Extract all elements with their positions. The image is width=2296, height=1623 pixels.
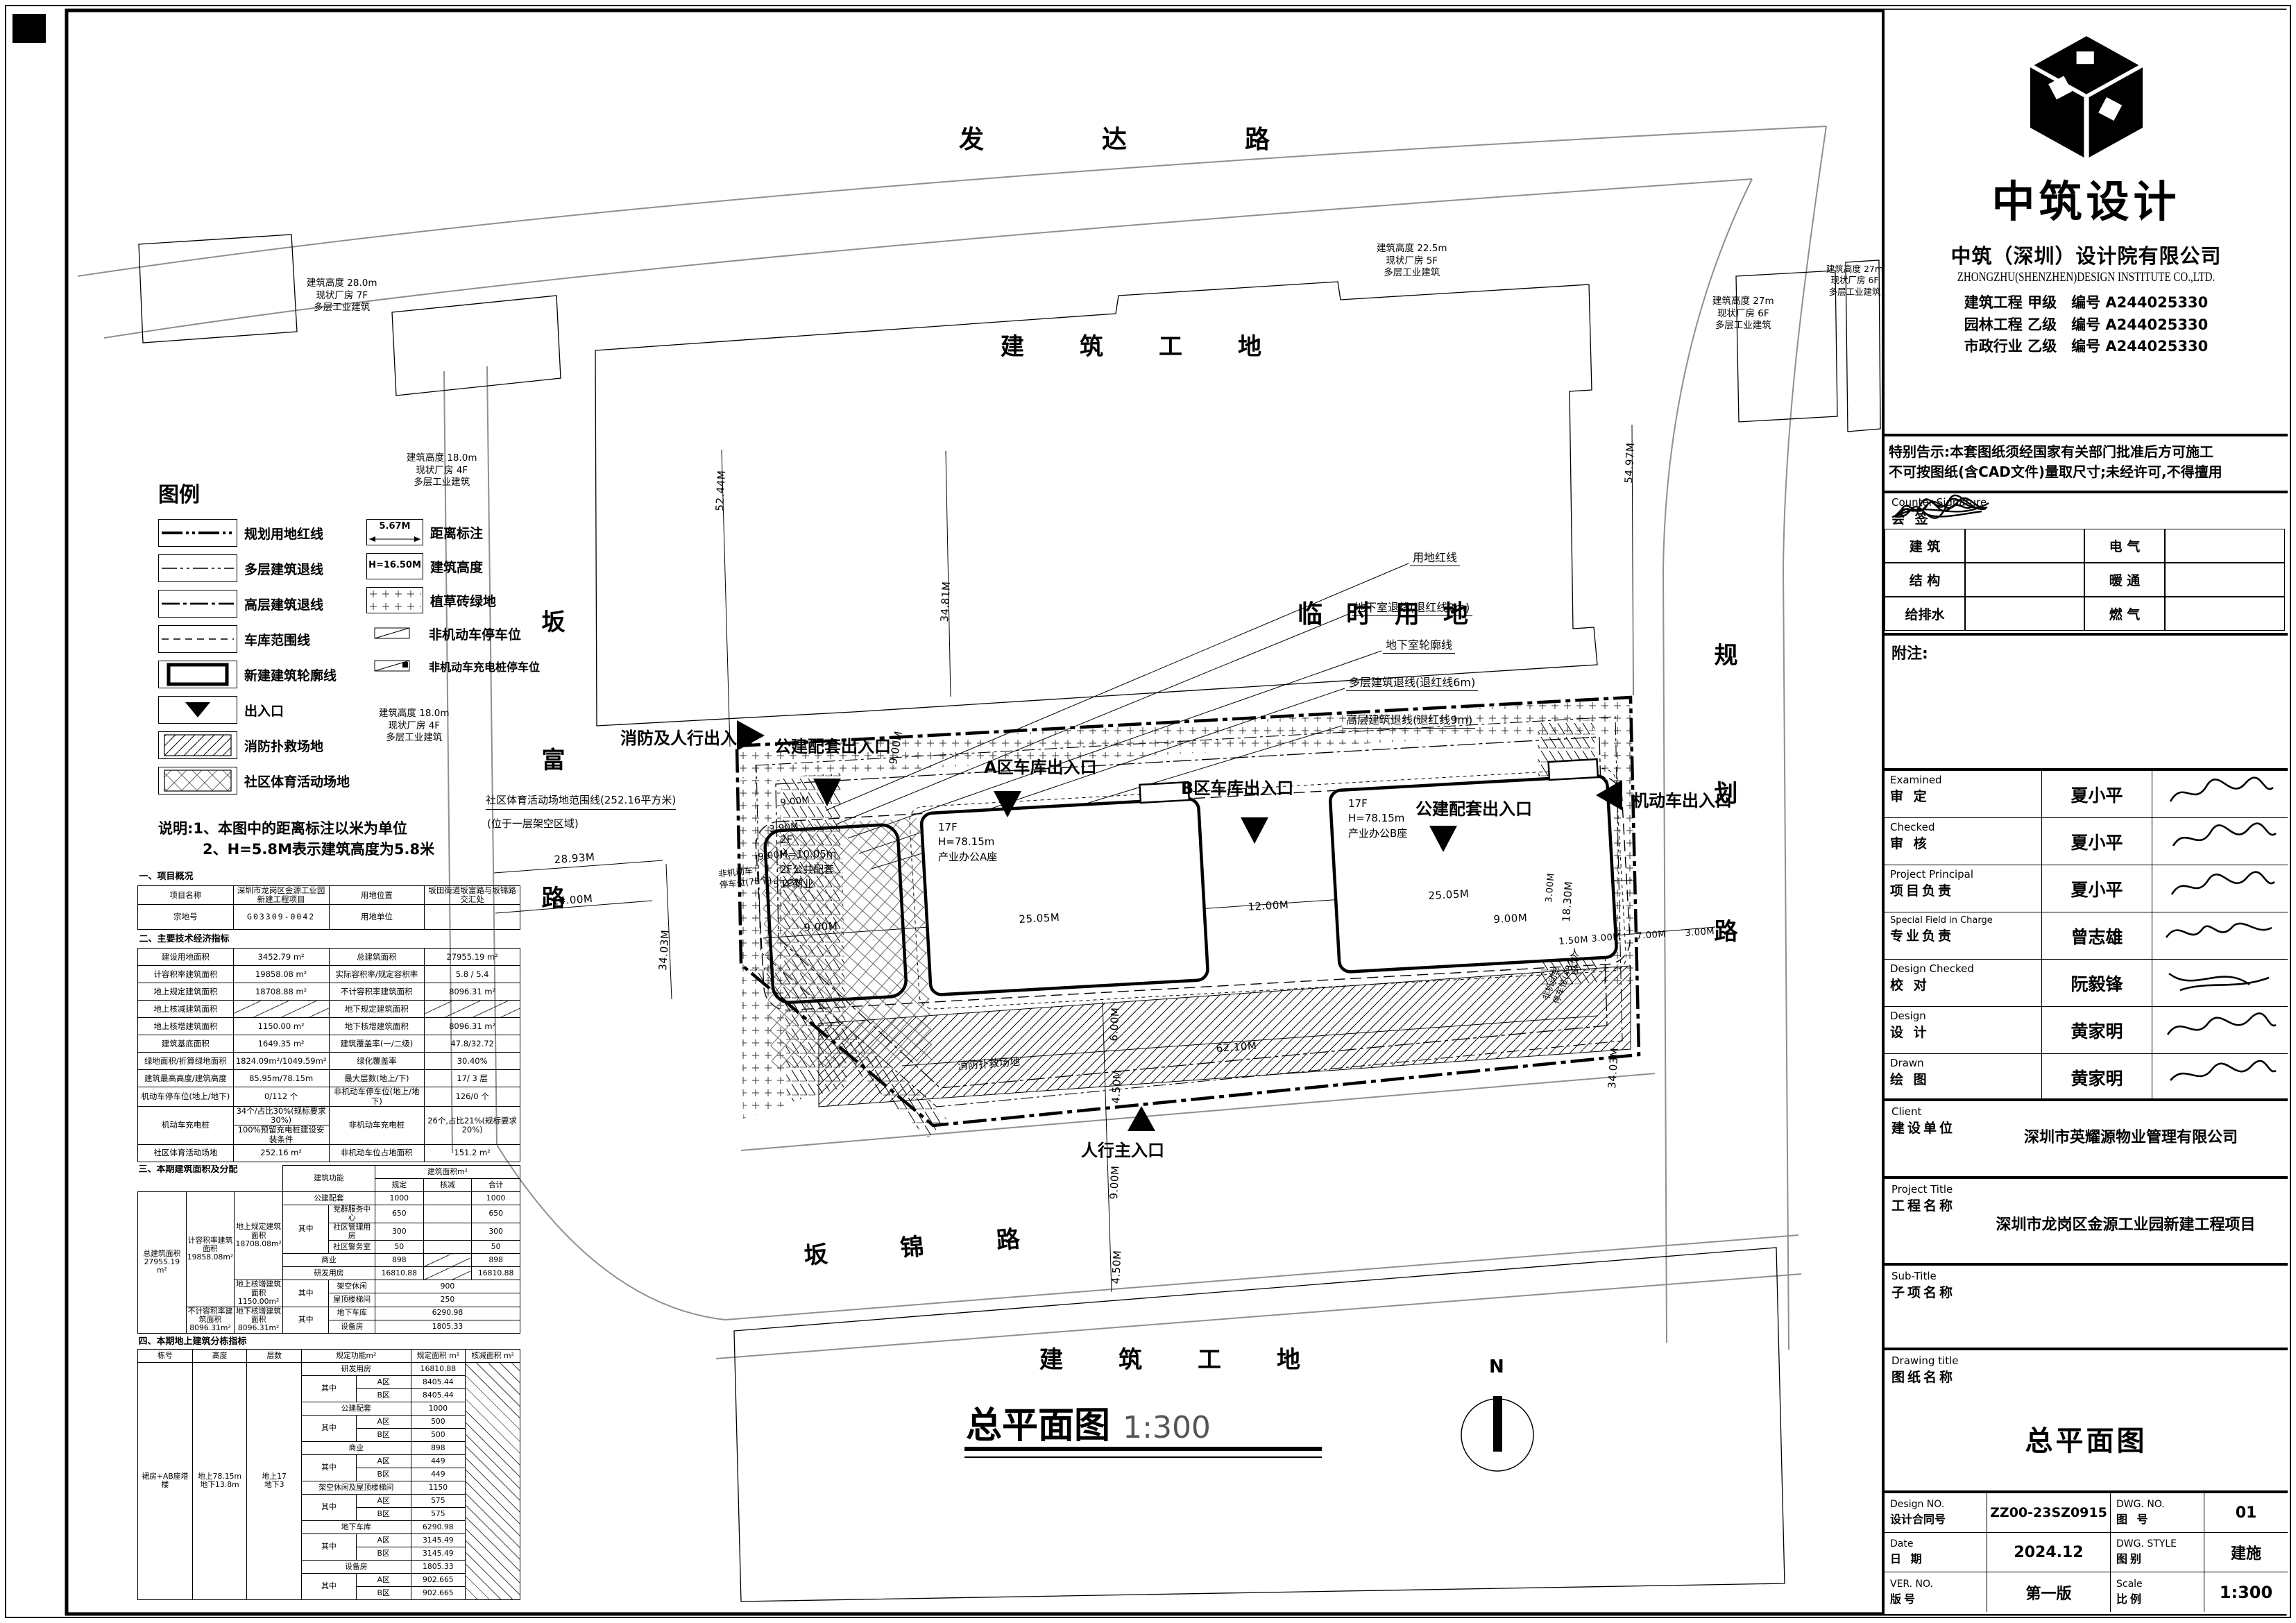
certificate-line: 市政行业 乙级 编号 A244025330 (1885, 336, 2288, 358)
main-pedestrian-entry-icon (1128, 1106, 1155, 1131)
signature-scribble-icon (2152, 865, 2284, 910)
design-no-value: ZZ00-23SZ0915 (1987, 1493, 2111, 1533)
dim: 9.00M (1107, 1165, 1122, 1200)
entrance-label-garage-a: A区车库出入口 (984, 754, 1097, 778)
title-block: 中筑设计 中筑（深圳）设计院有限公司 ZHONGZHU(SHENZHEN)DES… (1882, 10, 2288, 1614)
dim: 12.00M (1248, 899, 1289, 913)
area-allocation-table: 三、本期建筑面积及分配建筑功能建筑面积m² 规定核减合计 总建筑面积 27955… (137, 1165, 520, 1334)
signature-scribble-icon (2152, 1007, 2284, 1051)
callout-highrise-setback: 高层建筑退线(退红线9m) (1343, 711, 1475, 729)
company-name-en: ZHONGZHU(SHENZHEN)DESIGN INSTITUTE CO.,L… (1885, 271, 2288, 285)
callout-basement-setback: 地下室退线(退红线3m) (1352, 598, 1472, 616)
entrance-symbol-icon (158, 696, 237, 724)
multistorey-setback-symbol-icon (158, 554, 237, 582)
callout-multistorey-setback: 多层建筑退线(退红线6m) (1346, 673, 1478, 691)
building-label-tower-b: 17F H=78.15m 产业办公B座 (1348, 797, 1407, 841)
remark-label: 附注: (1885, 636, 2288, 663)
project-overview-table: 一、项目概况 项目名称 深圳市龙岗区金源工业园新建工程项目 用地位置 坂田街道坂… (137, 869, 520, 930)
personnel-name: 阮毅锋 (2041, 960, 2152, 1006)
dim: 1.50M (1558, 935, 1589, 947)
signature-cell (2152, 912, 2288, 959)
entrance-label-main-pedestrian: 人行主入口 (1081, 1137, 1164, 1161)
height-symbol-icon: H=16.50M (366, 553, 423, 579)
dwg-no-value: 01 (2204, 1493, 2288, 1533)
site-note-line1: 社区体育活动场地范围线(252.16平方米) (486, 794, 676, 810)
cell: 宗地号 (138, 905, 234, 930)
cell (425, 905, 520, 930)
entrance-label-garage-b: B区车库出入口 (1181, 774, 1293, 799)
dim: 4.50M (1109, 1069, 1124, 1104)
countersign-grid: 建 筑 电 气 结 构 暖 通 给排水 燃 气 (1885, 529, 2288, 631)
cell: 深圳市龙岗区金源工业园新建工程项目 (233, 886, 329, 905)
dim: 6.00M (1107, 1007, 1122, 1042)
signature-cell (2152, 818, 2288, 865)
indicator-tables: 一、项目概况 项目名称 深圳市龙岗区金源工业园新建工程项目 用地位置 坂田街道坂… (137, 869, 520, 1600)
north-label: N (1489, 1356, 1504, 1379)
legend-item: 车库范围线 (158, 625, 362, 653)
cell: G03309-0042 (233, 905, 329, 930)
signature-scribble-icon (2152, 818, 2284, 863)
road-label-top: 发达路 (959, 119, 1388, 155)
entrance-label-public-1: 公建配套出入口 (774, 733, 891, 757)
signature-cell (1965, 597, 2084, 631)
callout-basement-outline: 地下室轮廓线 (1383, 636, 1455, 654)
signature-scribble-icon (1885, 493, 2001, 525)
personnel-name: 夏小平 (2041, 865, 2152, 912)
road-label-right: 规划路 (1707, 643, 1741, 1057)
cell: 用地单位 (329, 905, 425, 930)
signature-scribble-icon (2152, 771, 2284, 815)
personnel-name: 夏小平 (2041, 771, 2152, 817)
garage-line-symbol-icon (158, 625, 237, 653)
legend-item: 规划用地红线 (158, 519, 362, 547)
cell: 坂田街道坂富路与坂锦路交汇处 (425, 886, 520, 905)
legend: 图例 规划用地红线 多层建筑退线 高层建筑退线 车库范围线 新建建筑轮廓线 出入… (158, 477, 491, 859)
legend-item: 植草砖绿地 (366, 587, 491, 613)
plan-scale: 1:300 (1123, 1410, 1211, 1445)
drawing-title-value: 总平面图 (1885, 1418, 2288, 1459)
certificate-line: 建筑工程 甲级 编号 A244025330 (1885, 292, 2288, 314)
personnel-name: 黄家明 (2041, 1007, 2152, 1053)
personnel-name: 曾志雄 (2041, 912, 2152, 959)
signature-cell (2165, 529, 2285, 563)
scale-value: 1:300 (2204, 1572, 2288, 1612)
legend-item: 消防扑救场地 (158, 731, 362, 759)
legend-item: 非机动车充电桩停车位 (366, 654, 491, 679)
area-label-construction-top: 建筑工地 (1001, 328, 1317, 362)
dim: 3.00M (1685, 926, 1715, 939)
legend-item: 出入口 (158, 696, 362, 724)
legend-title: 图例 (158, 477, 491, 508)
signature-cell (1965, 529, 2084, 563)
plan-title: 总平面图 1:300 (966, 1403, 1211, 1450)
signature-cell (2165, 563, 2285, 597)
certificate-line: 园林工程 乙级 编号 A244025330 (1885, 314, 2288, 337)
legend-item: 多层建筑退线 (158, 554, 362, 582)
signature-cell (2165, 597, 2285, 631)
title-block-grid: Design NO.设计合同号 ZZ00-23SZ0915 DWG. NO.图 … (1885, 1493, 2288, 1612)
legend-item: 社区体育活动场地 (158, 767, 362, 794)
signature-cell (2152, 771, 2288, 817)
legend-item: 5.67M距离标注 (366, 519, 491, 545)
per-building-table: 四、本期地上建筑分栋指标 栋号高度层数规定功能m²规定面积 m²核减面积 m² … (137, 1336, 520, 1600)
area-label-construction-bottom: 建筑工地 (1039, 1341, 1356, 1375)
entrance-label-vehicle: 机动车出入口 (1632, 787, 1732, 811)
grass-brick-symbol-icon (366, 587, 423, 613)
signature-scribble-icon (2152, 960, 2284, 1004)
signature-cell (1965, 563, 2084, 597)
signature-cell (2152, 865, 2288, 912)
legend-item: 新建建筑轮廓线 (158, 661, 362, 688)
plan-title-text: 总平面图 (966, 1405, 1110, 1447)
redline-symbol-icon (158, 519, 237, 547)
registration-mark (12, 14, 46, 43)
dim: 4.50M (1109, 1250, 1124, 1284)
annotation-existing-1: 建筑高度 28.0m 现状厂房 7F 多层工业建筑 (307, 278, 377, 314)
legend-note-2: 2、H=5.8M表示建筑高度为5.8米 (203, 838, 491, 859)
personnel-name: 夏小平 (2041, 818, 2152, 865)
dim: 34.81M (938, 581, 953, 622)
technical-indicator-table: 二、主要技术经济指标 建设用地面积3452.79 m²总建筑面积27955.19… (137, 931, 520, 1162)
dim: 54.97M (1622, 442, 1637, 484)
bike-charging-symbol-icon (366, 654, 422, 679)
brand-name: 中筑设计 (1885, 167, 2288, 229)
dim: 3.00M (1591, 932, 1622, 944)
entrance-label-fire-pedestrian: 消防及人行出入口 (620, 724, 754, 749)
dim: 52.44M (713, 470, 728, 511)
site-note-line2: (位于一层架空区域) (487, 817, 579, 831)
north-arrow-icon (1461, 1396, 1533, 1471)
annotation-existing-6: 建筑高度 27m 现状厂房 6F 多层工业建筑 (1826, 264, 1883, 298)
legend-item: 非机动车停车位 (366, 621, 491, 646)
company-name-cn: 中筑（深圳）设计院有限公司 (1885, 240, 2288, 269)
personnel-table: Examined审 定夏小平 Checked审 核夏小平 Project Pri… (1885, 771, 2288, 1101)
entrance-label-public-2: 公建配套出入口 (1415, 795, 1532, 819)
sidewalk-label: 人行道 (1567, 948, 1579, 975)
new-building-symbol-icon (158, 661, 237, 688)
cell: 用地位置 (329, 886, 425, 905)
project-title-value: 深圳市龙岗区金源工业园新建工程项目 (1968, 1212, 2284, 1234)
drawing-sheet: 发达路 坂富路 规划路 坂锦路 建筑工地 临时用地 建筑工地 消防扑救场地 消防… (0, 0, 2296, 1623)
annotation-existing-4: 建筑高度 22.5m 现状厂房 5F 多层工业建筑 (1377, 243, 1447, 280)
special-notice: 特别告示:本套图纸须经国家有关部门批准后方可施工 不可按图纸(含CAD文件)量取… (1885, 436, 2288, 493)
dim: 25.05M (1019, 911, 1060, 926)
building-label-tower-a: 17F H=78.15m 产业办公A座 (938, 820, 997, 865)
sports-site-symbol-icon (158, 767, 237, 794)
highrise-setback-symbol-icon (158, 590, 237, 618)
fire-site-symbol-icon (158, 731, 237, 759)
dim: 9.00M (803, 919, 838, 934)
signature-scribble-icon (2152, 912, 2284, 957)
garage-b-entry-icon (1241, 817, 1268, 844)
dim: 7.00M (1636, 929, 1667, 942)
version-value: 第一版 (1987, 1572, 2111, 1612)
callout-redline: 用地红线 (1410, 548, 1460, 566)
cell: 项目名称 (138, 886, 234, 905)
signature-cell (2152, 960, 2288, 1006)
legend-item: H=16.50M建筑高度 (366, 553, 491, 579)
legend-item: 高层建筑退线 (158, 590, 362, 618)
dim: 9.00M (1493, 911, 1528, 926)
signature-cell (2152, 1054, 2288, 1101)
signature-cell (2152, 1007, 2288, 1053)
client-value: 深圳市英耀源物业管理有限公司 (1982, 1125, 2280, 1147)
personnel-name: 黄家明 (2041, 1054, 2152, 1101)
dim: 25.05M (1428, 887, 1470, 902)
dwg-style-value: 建施 (2204, 1533, 2288, 1572)
date-value: 2024.12 (1987, 1533, 2111, 1572)
legend-note-1: 说明:1、本图中的距离标注以米为单位 (158, 817, 491, 838)
annotation-existing-5: 建筑高度 27m 现状厂房 6F 多层工业建筑 (1712, 296, 1774, 332)
zhongzhu-logo-icon (2024, 31, 2149, 162)
signature-scribble-icon (2152, 1054, 2284, 1098)
distance-symbol-icon: 5.67M (366, 519, 423, 545)
bike-parking-symbol-icon (366, 621, 422, 646)
